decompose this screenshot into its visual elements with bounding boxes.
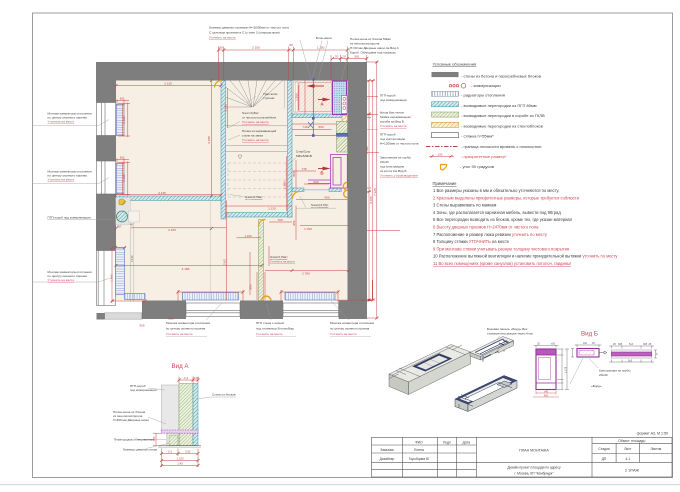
svg-text:Ниша 8см челов: Ниша 8см челов: [380, 111, 404, 115]
svg-text:2 ЭТАЖ: 2 ЭТАЖ: [625, 469, 640, 473]
svg-text:450: 450: [544, 394, 549, 397]
svg-text:Уточнить на месте: Уточнить на месте: [48, 278, 75, 282]
svg-text:Блок-ниши: Блок-ниши: [316, 36, 332, 40]
svg-text:0,3: 0,3: [168, 450, 172, 454]
svg-text:короба см.Вид Б: короба см.Вид Б: [380, 120, 404, 124]
svg-text:Вид А: Вид А: [172, 363, 190, 370]
svg-text:ПГП-короб: ПГП-короб: [380, 133, 396, 137]
svg-text:Заказчик: Заказчик: [380, 448, 394, 452]
svg-text:Уточнить на месте: Уточнить на месте: [48, 178, 75, 182]
svg-text:формат А3, М 1:50: формат А3, М 1:50: [637, 432, 668, 436]
svg-text:1.700: 1.700: [304, 227, 312, 231]
svg-text:3.370: 3.370: [369, 196, 373, 204]
svg-text:700: 700: [277, 218, 282, 222]
svg-text:2.62: 2.62: [223, 259, 227, 265]
svg-text:Вид Б: Вид Б: [581, 331, 598, 338]
svg-text:Границы дверных ниши: Границы дверных ниши: [123, 448, 157, 452]
svg-text:745: 745: [302, 125, 307, 129]
svg-text:3 Стены выравнивать по маякам: 3 Стены выравнивать по маякам: [433, 203, 496, 208]
svg-text:- стены из бетона и пазогреб: - стены из бетона и пазогребневых блоков: [461, 73, 541, 78]
svg-text:Уточнить на месте: Уточнить на месте: [48, 120, 75, 124]
svg-text:305: 305: [618, 343, 623, 346]
svg-text:х50: х50: [551, 343, 556, 346]
svg-text:20х40: 20х40: [599, 373, 608, 377]
svg-text:1.135: 1.135: [224, 104, 228, 112]
svg-text:20: 20: [342, 55, 346, 59]
svg-text:ПЛАН МОНТАЖА: ПЛАН МОНТАЖА: [519, 449, 549, 453]
svg-text:2.150: 2.150: [130, 255, 134, 262]
svg-text:Стена из блоков: Стена из блоков: [212, 393, 236, 397]
svg-text:1 Все размеры указаны в мм и о: 1 Все размеры указаны в мм и обязательно…: [433, 188, 560, 193]
svg-text:х40: х40: [544, 390, 549, 393]
svg-text:Уточнить на месте: Уточнить на месте: [270, 260, 295, 264]
svg-text:под коммуникации: под коммуникации: [130, 388, 157, 392]
svg-text:9 При монтаже стяжки учитывать: 9 При монтаже стяжки учитывать разную то…: [433, 246, 569, 251]
svg-text:1.320: 1.320: [177, 457, 184, 461]
svg-text:Короб. Облицовка под покраску: Короб. Облицовка под покраску: [350, 51, 396, 55]
svg-text:3.136: 3.136: [158, 191, 166, 195]
svg-text:600: 600: [120, 97, 125, 101]
svg-text:ФИО: ФИО: [415, 440, 423, 444]
svg-text:500: 500: [318, 125, 323, 129]
svg-text:съемная инструкция через блок: съемная инструкция через блок: [487, 332, 533, 336]
svg-text:Подп: Подп: [443, 440, 451, 444]
svg-text:Перегородка облицованная: Перегородка облицованная: [114, 438, 154, 442]
svg-text:7.125: 7.125: [373, 188, 377, 196]
svg-text:от чистого пола мебели: от чистого пола мебели: [242, 116, 276, 120]
svg-text:ПГП стена с нишей: ПГП стена с нишей: [256, 321, 284, 325]
svg-text:560: 560: [249, 284, 253, 289]
svg-text:20х40: 20х40: [380, 160, 389, 164]
svg-text:под конструкцию: под конструкцию: [380, 165, 405, 169]
svg-text:7 Расположение и размер люка р: 7 Расположение и размер люка ревизии уто…: [433, 232, 548, 237]
svg-text:из пенополистирола: из пенополистирола: [350, 42, 380, 46]
svg-text:под коммуникации: под коммуникации: [380, 98, 407, 102]
svg-text:под телевизор В план.Вар.: под телевизор В план.Вар.: [256, 327, 295, 331]
svg-text:5х3: 5х3: [628, 359, 633, 362]
svg-text:5х3: 5х3: [629, 343, 634, 346]
svg-text:Боковая панель «Борд» Вок: Боковая панель «Борд» Вок: [487, 327, 528, 331]
svg-text:2.105: 2.105: [168, 228, 176, 232]
svg-text:Заполнение из трубы: Заполнение из трубы: [380, 156, 412, 160]
svg-text:под инсталляцию: под инсталляцию: [380, 137, 406, 141]
svg-text:- угол 90 градусов: - угол 90 градусов: [460, 164, 494, 169]
svg-text:- радиаторы отопления: - радиаторы отопления: [461, 92, 505, 97]
svg-text:Примечание: Примечание: [433, 181, 458, 186]
svg-text:0,08: 0,08: [193, 376, 199, 380]
svg-text:Объект: площадь:: Объект: площадь:: [618, 439, 646, 443]
svg-text:Дата: Дата: [463, 440, 470, 444]
svg-text:2 Красным выделены приоритетны: 2 Красным выделены приоритетные размеры,…: [433, 195, 580, 200]
svg-text:Монтаж конвектора отопления: Монтаж конвектора отопления: [166, 321, 210, 325]
svg-text:Уточнить у производителя: Уточнить у производителя: [380, 174, 418, 178]
svg-text:100: 100: [438, 152, 443, 156]
svg-text:4х0: 4х0: [583, 342, 588, 345]
svg-text:905: 905: [139, 324, 144, 328]
svg-text:Горобцова Ю: Горобцова Ю: [409, 457, 430, 461]
svg-text:3.135: 3.135: [164, 82, 172, 86]
svg-text:Стадия: Стадия: [598, 447, 609, 451]
svg-text:«Борд»: «Борд»: [591, 384, 602, 388]
svg-text:745: 745: [301, 167, 306, 171]
svg-text:ПГП-короб: ПГП-короб: [380, 94, 396, 98]
svg-text:4 Зоны, где располагается карн: 4 Зоны, где располагается карнизная мебе…: [433, 210, 561, 215]
svg-text:1.120: 1.120: [268, 206, 276, 210]
svg-text:по центру оконного проема: по центру оконного проема: [166, 327, 206, 331]
svg-text:Мойка нержавеющая: Мойка нержавеющая: [380, 115, 411, 119]
svg-text:- возводимые перегородки в к: - возводимые перегородки в коробе из ГКЛ…: [461, 113, 545, 118]
svg-text:Дизайн проект площади по адрес: Дизайн проект площади по адресу: [507, 465, 561, 469]
svg-text:8 Толщину стяжки УТОЧНИТЬ на м: 8 Толщину стяжки УТОЧНИТЬ на месте: [433, 239, 510, 244]
svg-text:Условные обозначения: Условные обозначения: [433, 62, 477, 67]
svg-text:0,62: 0,62: [185, 450, 191, 454]
svg-text:560: 560: [168, 317, 173, 321]
svg-text:из котла См.Вид Б: из котла См.Вид Б: [380, 169, 407, 173]
svg-text:ДП: ДП: [602, 457, 607, 461]
svg-text:70: 70: [335, 55, 339, 59]
svg-text:10 Расположение вытяжной венти: 10 Расположение вытяжной вентиляции и на…: [433, 254, 618, 259]
svg-text:6 Высоту дверных проемов Н=247: 6 Высоту дверных проемов Н=2470мм от чис…: [433, 225, 539, 230]
svg-text:Монтаж конвектора отопления: Монтаж конвектора отопления: [330, 321, 374, 325]
svg-text:11 Во всех помещениях (кроме с: 11 Во всех помещениях (кроме санузлов) у…: [433, 261, 571, 266]
svg-text:4.1: 4.1: [626, 457, 631, 461]
svg-text:1.810: 1.810: [294, 93, 298, 101]
svg-text:г. Москва, КП "Кембридж": г. Москва, КП "Кембридж": [515, 471, 555, 475]
svg-text:Стир/Суш: Стир/Суш: [296, 150, 311, 154]
svg-text:- возводимые перегородки из: - возводимые перегородки из стеклоблоков: [461, 123, 543, 128]
svg-text:1.580: 1.580: [283, 181, 287, 189]
svg-text:- коммуникации: - коммуникации: [471, 83, 501, 88]
svg-text:МФх/МФхВ: МФх/МФхВ: [296, 154, 312, 158]
svg-text:860: 860: [292, 171, 296, 176]
svg-text:Конструкция из трубы: Конструкция из трубы: [599, 369, 631, 373]
svg-text:2.780: 2.780: [302, 272, 310, 276]
svg-text:ступени: ступени: [263, 96, 275, 100]
svg-text:0,4: 0,4: [184, 376, 188, 380]
svg-text:Уточнить на месте: Уточнить на месте: [330, 332, 357, 336]
svg-text:Sпом=3,70м²: Sпом=3,70м²: [270, 255, 287, 259]
svg-text:С цельным проемом в С (у зоне: С цельным проемом в С (у зоне 3 (спереди…: [209, 31, 280, 35]
svg-text:Уточнить на месте: Уточнить на месте: [380, 124, 407, 128]
svg-text:Уточнить на месте: Уточнить на месте: [256, 332, 283, 336]
svg-text:Уточнить на месте: Уточнить на месте: [242, 120, 269, 124]
svg-text:5 Все перегородки возводить из: 5 Все перегородки возводить из блоков, к…: [433, 217, 573, 222]
svg-text:Границы дверных проемов Н= 50/: Границы дверных проемов Н= 50/50мм от чи…: [209, 26, 289, 30]
svg-text:Полки из нержавеющей: Полки из нержавеющей: [242, 129, 276, 133]
svg-text:Sпом=3,70м²: Sпом=3,70м²: [245, 195, 262, 199]
svg-text:305: 305: [643, 343, 648, 346]
svg-text:- возводимые перегородки из: - возводимые перегородки из ПГП 80мм: [461, 103, 537, 108]
svg-text:1,40: 1,40: [177, 462, 183, 466]
svg-text:ПГП-короб под коммуникации: ПГП-короб под коммуникации: [48, 216, 91, 220]
svg-text:1.176: 1.176: [564, 366, 567, 373]
svg-text:- приоритетные размер*: - приоритетные размер*: [461, 154, 507, 159]
svg-text:- стяжка h=55мм*: - стяжка h=55мм*: [461, 134, 494, 139]
svg-text:стали на заказ: стали на заказ: [242, 134, 264, 138]
svg-text:2.100: 2.100: [252, 46, 260, 50]
svg-text:Уточнить на месте: Уточнить на месте: [166, 332, 193, 336]
svg-text:Уточнить на месте: Уточнить на месте: [242, 138, 269, 142]
svg-text:h=450 мм Дверные ниши: h=450 мм Дверные ниши: [113, 418, 149, 422]
svg-text:3.185: 3.185: [207, 136, 211, 144]
svg-text:90: 90: [289, 43, 293, 47]
svg-text:90: 90: [219, 46, 223, 50]
svg-text:361: 361: [354, 55, 359, 59]
svg-text:Sлест=3,8м²: Sлест=3,8м²: [242, 111, 258, 115]
svg-text:1.310: 1.310: [122, 116, 126, 124]
svg-text:600: 600: [313, 180, 318, 184]
svg-text:407: 407: [117, 224, 122, 228]
svg-text:1.150: 1.150: [245, 234, 252, 238]
svg-text:950: 950: [292, 220, 296, 225]
svg-text:2.330: 2.330: [365, 146, 369, 154]
svg-text:1.310: 1.310: [122, 174, 126, 182]
svg-text:Н=30 мм Дверные ниши см.Вид А: Н=30 мм Дверные ниши см.Вид А: [350, 46, 400, 50]
svg-text:Лист: Лист: [624, 447, 632, 451]
svg-text:Елена: Елена: [414, 448, 424, 452]
svg-text:Полка ниша из блоков 50мм: Полка ниша из блоков 50мм: [350, 37, 391, 41]
svg-text:Н=1200мм от чистого пола: Н=1200мм от чистого пола: [380, 142, 419, 146]
svg-text:Листов: Листов: [650, 447, 661, 451]
svg-text:Уточнить на месте: Уточнить на месте: [209, 36, 236, 40]
svg-text:4.185: 4.185: [182, 267, 190, 271]
svg-text:600: 600: [120, 156, 125, 160]
svg-text:- граница плоскости вровень: - граница плоскости вровень с плоскостью: [461, 144, 541, 149]
svg-text:Sпом=(3,70)²: Sпом=(3,70)²: [311, 203, 328, 207]
svg-text:Дизайнер: Дизайнер: [380, 457, 395, 461]
svg-text:по центру оконного проема: по центру оконного проема: [330, 327, 370, 331]
svg-text:400: 400: [324, 195, 329, 199]
